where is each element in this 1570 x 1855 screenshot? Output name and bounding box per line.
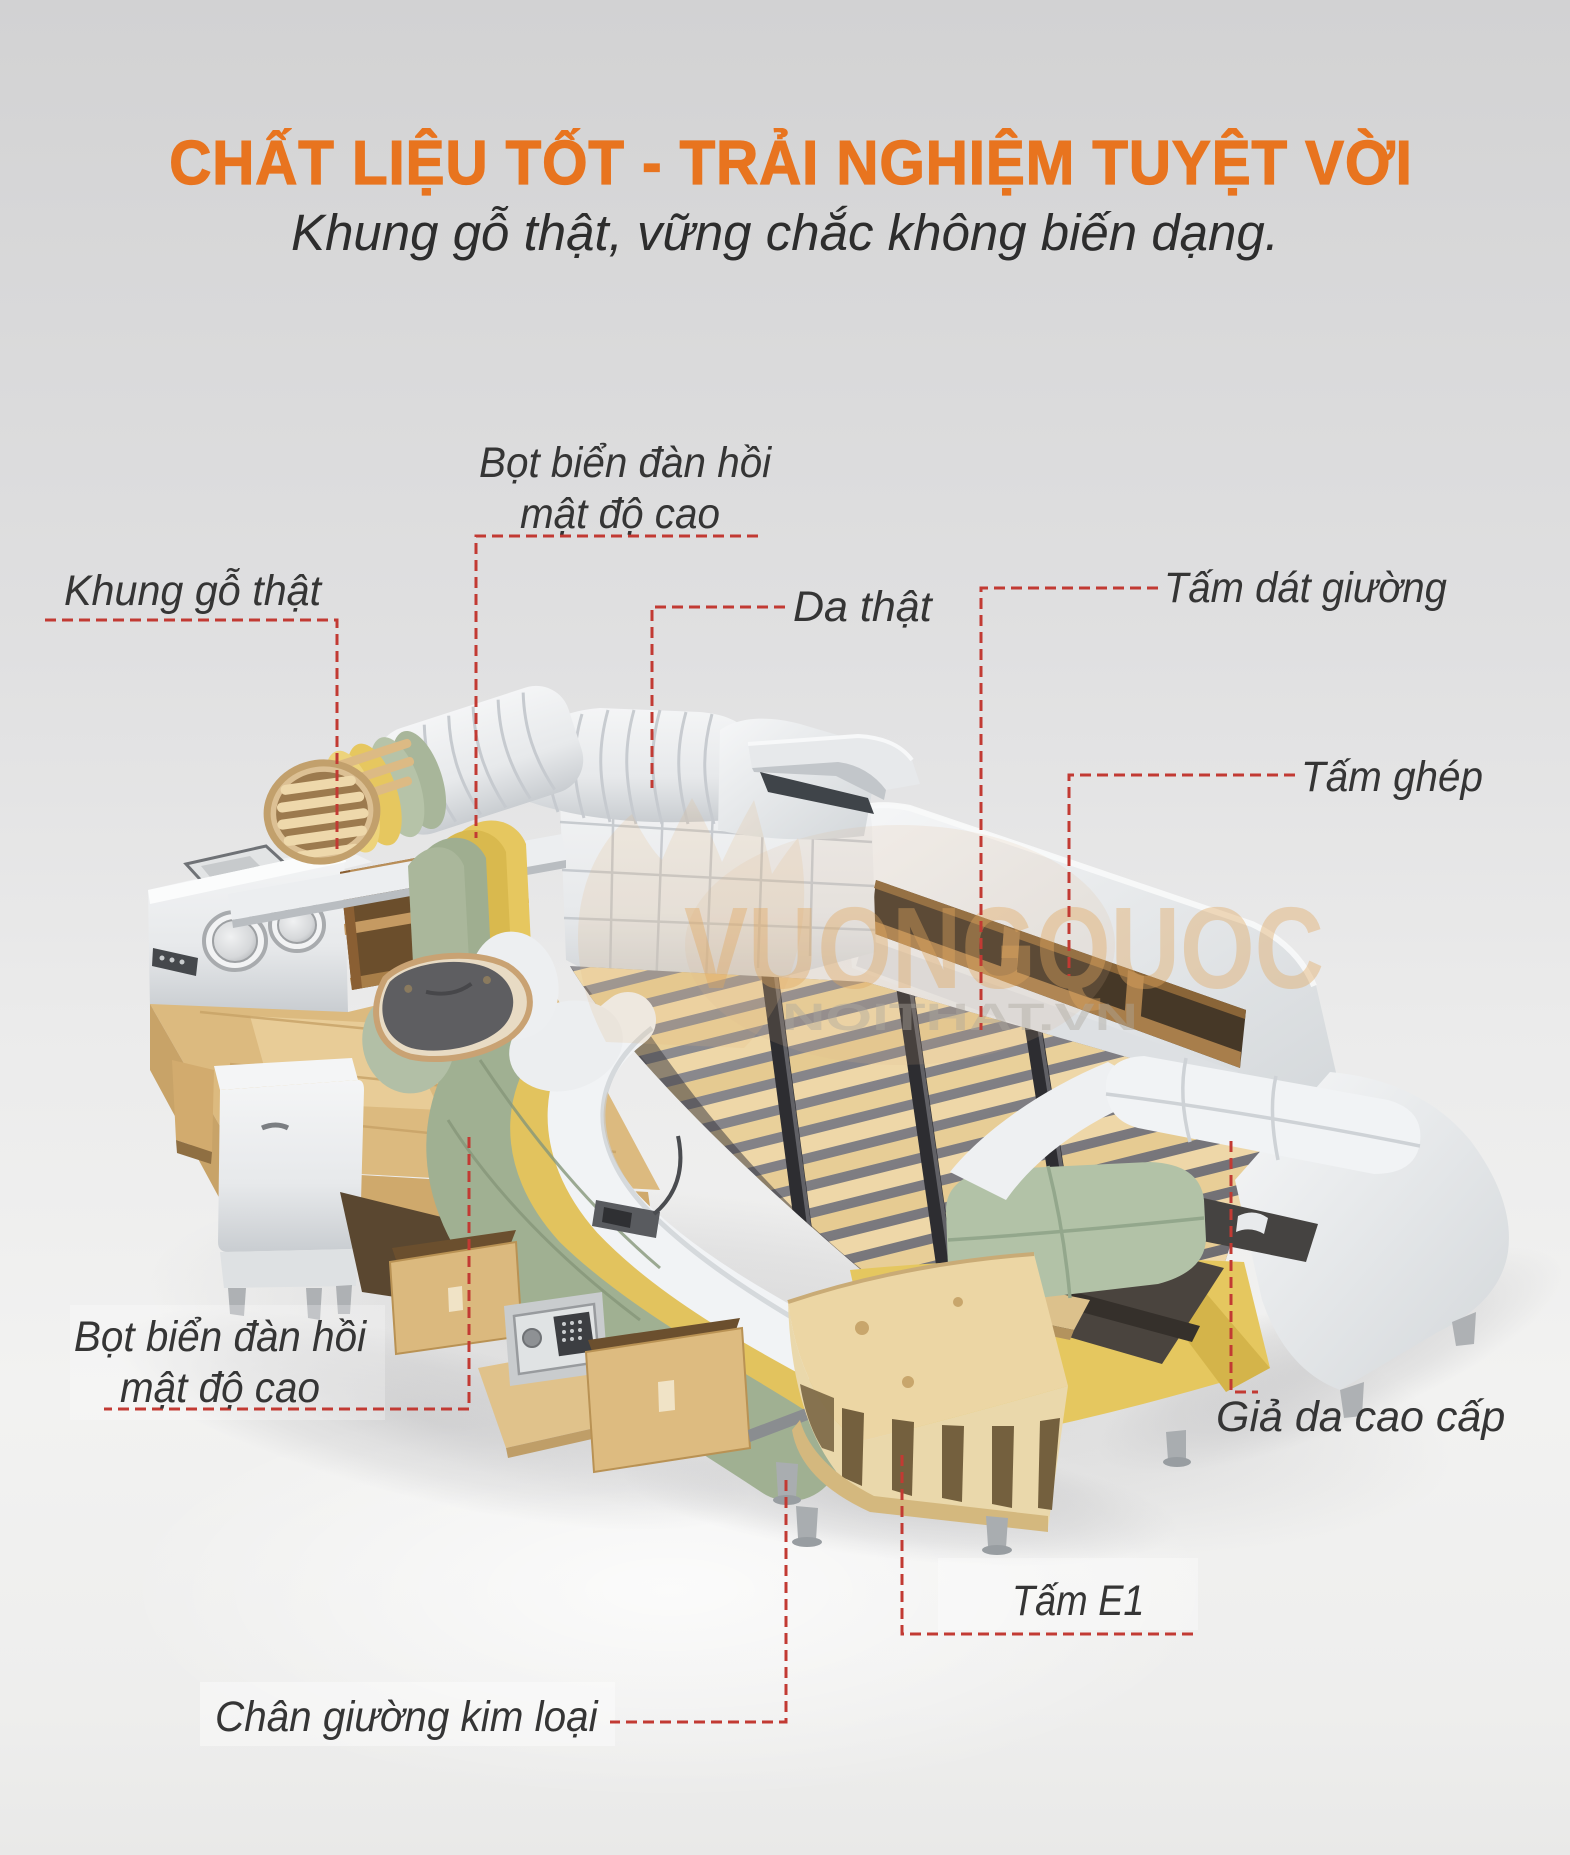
svg-text:VUONGQUOC: VUONGQUOC [684, 883, 1324, 1013]
svg-text:NOITHAT.VN: NOITHAT.VN [782, 997, 1138, 1039]
